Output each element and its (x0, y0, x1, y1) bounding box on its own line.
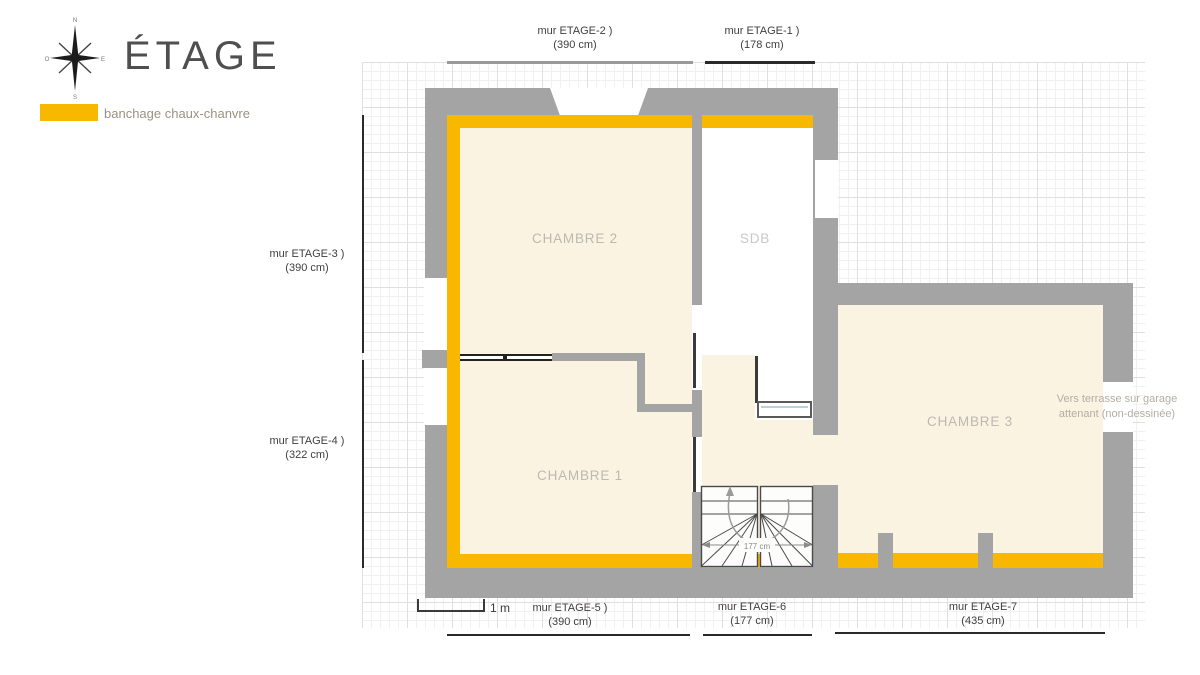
sdb-fixture-glazing (761, 406, 808, 408)
svg-text:S: S (73, 95, 77, 100)
dim-label-mur-etage-7: mur ETAGE-7(435 cm) (913, 600, 1053, 628)
room-label-chambre2: CHAMBRE 2 (495, 231, 655, 246)
partition-nook-bottom (637, 404, 702, 412)
dim-line-mur-etage-4 (362, 360, 364, 568)
right-wall-window-sdb (815, 160, 838, 218)
legend-swatch-banchage (40, 104, 98, 121)
scale-bar (417, 599, 485, 612)
chambre1-door-leaf (693, 437, 696, 492)
dim-label-mur-etage-2: mur ETAGE-2 )(390 cm) (505, 24, 645, 52)
legend-label: banchage chaux-chanvre (104, 106, 250, 121)
left-wall-window-chambre2 (424, 278, 447, 350)
chambre3-floor (838, 305, 1103, 568)
sdb-lower-door-leaf (755, 356, 758, 403)
left-wall-sill (422, 350, 447, 368)
terrace-note: Vers terrasse sur garage attenant (non-d… (1038, 392, 1196, 422)
page-title: ÉTAGE (124, 34, 282, 79)
room-label-chambre3: CHAMBRE 3 (890, 414, 1050, 429)
left-wall-window-chambre1 (424, 368, 447, 425)
chambre3-wall-stub-2 (978, 533, 993, 568)
dim-line-mur-etage-7 (835, 632, 1105, 634)
dim-line-mur-etage-1 (705, 61, 815, 64)
dim-label-mur-etage-3: mur ETAGE-3 )(390 cm) (237, 247, 377, 275)
partition-nook-top (552, 353, 645, 361)
banchage-band-top (447, 115, 813, 128)
room-label-chambre1: CHAMBRE 1 (500, 468, 660, 483)
svg-text:E: E (101, 57, 105, 63)
floor-plan-page: N S E O ÉTAGE banchage chaux-chanvre (0, 0, 1200, 675)
dim-label-mur-etage-4: mur ETAGE-4 )(322 cm) (237, 434, 377, 462)
staircase: 177 cm (698, 483, 816, 570)
svg-text:O: O (45, 57, 50, 63)
compass-rose-icon: N S E O (44, 14, 106, 100)
partition-door-stop (503, 354, 507, 361)
sdb-door-leaf (693, 333, 696, 388)
sdb-fixture (757, 401, 812, 418)
dim-line-mur-etage-2 (447, 61, 693, 64)
dim-line-mur-etage-6 (703, 634, 812, 636)
chambre3-wall-stub-1 (878, 533, 893, 568)
room-label-sdb: SDB (715, 231, 795, 246)
dim-label-mur-etage-5: mur ETAGE-5 )(390 cm) (500, 601, 640, 629)
dim-label-mur-etage-1: mur ETAGE-1 )(178 cm) (692, 24, 832, 52)
scale-bar-label: 1 m (490, 601, 510, 615)
passage-hall-to-chambre3 (813, 435, 838, 485)
top-wall-window (550, 88, 648, 115)
banchage-band-left (447, 115, 460, 568)
stair-width-dimension: 177 cm (744, 542, 771, 551)
svg-text:N: N (73, 18, 77, 24)
dim-line-mur-etage-3 (362, 115, 364, 353)
dim-line-mur-etage-5 (447, 634, 690, 636)
dim-label-mur-etage-6: mur ETAGE-6(177 cm) (682, 600, 822, 628)
